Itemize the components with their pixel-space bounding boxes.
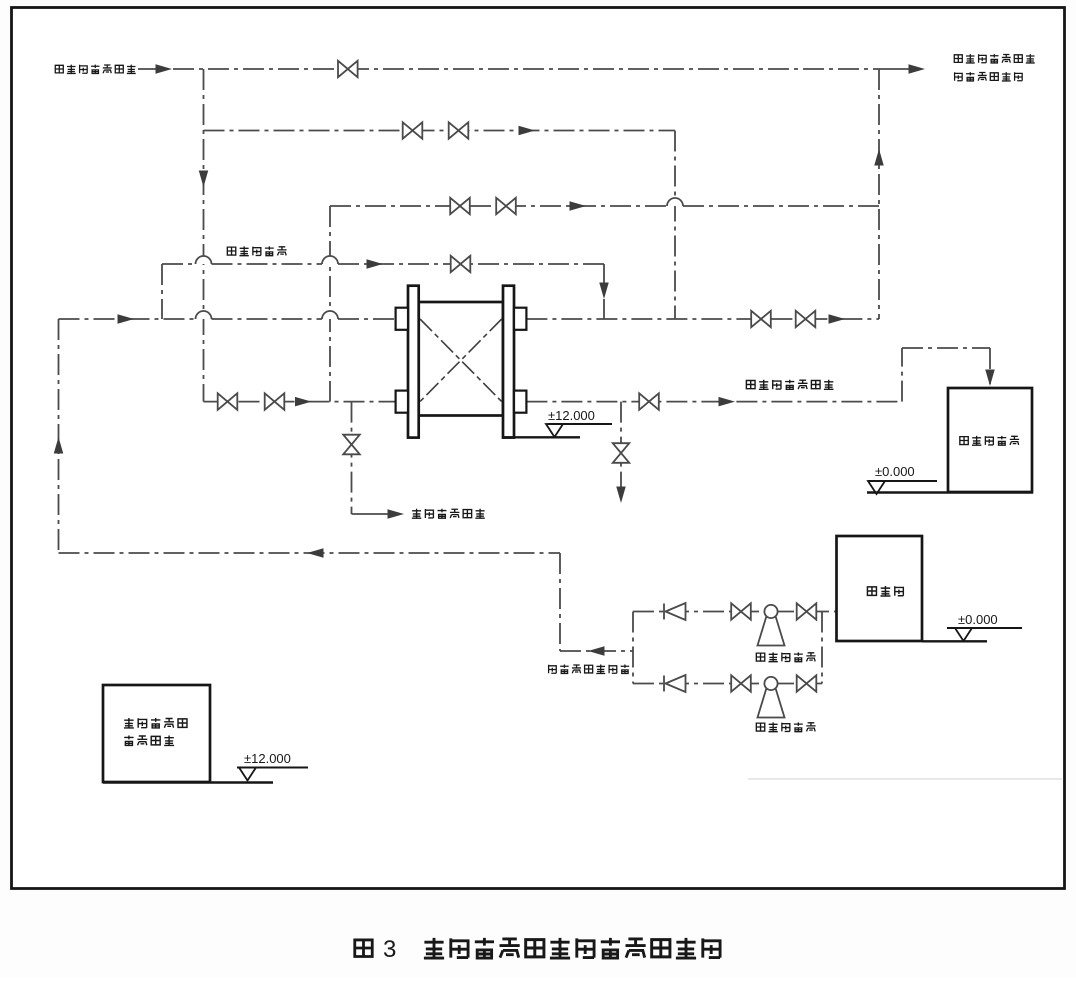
- svg-text:±0.000: ±0.000: [958, 612, 998, 627]
- svg-text:±0.000: ±0.000: [875, 464, 915, 479]
- svg-text:±12.000: ±12.000: [548, 408, 595, 423]
- svg-text:3: 3: [383, 936, 396, 963]
- svg-text:±12.000: ±12.000: [244, 751, 291, 766]
